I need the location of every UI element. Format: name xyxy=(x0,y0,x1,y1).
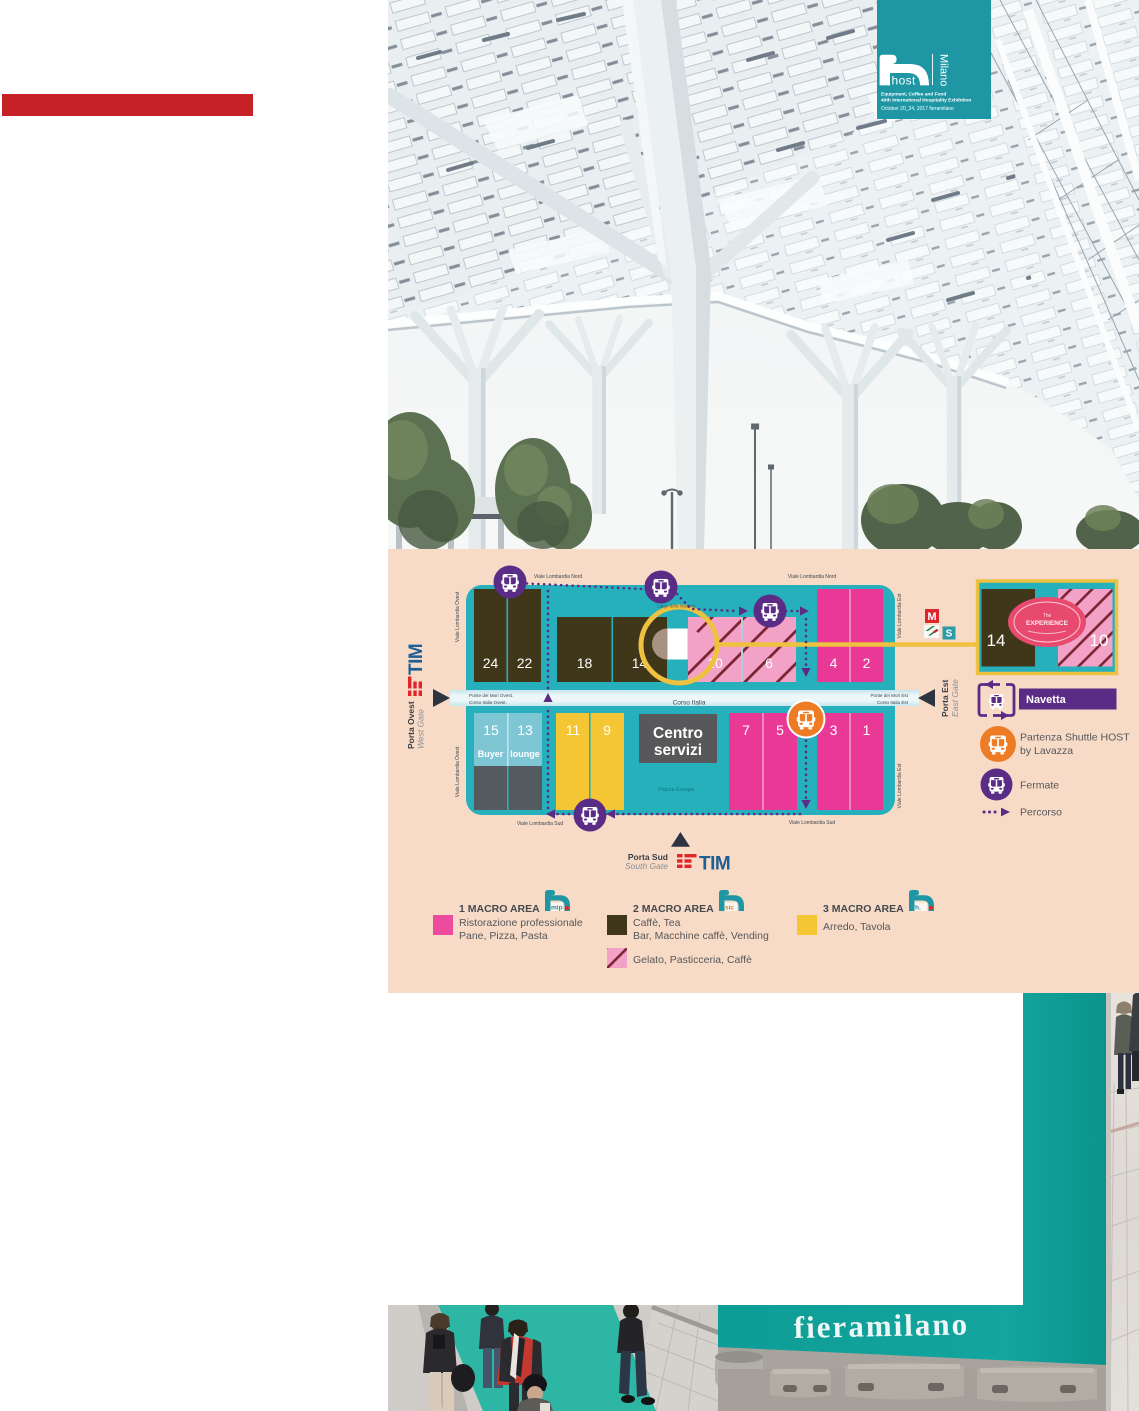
svg-text:servizi: servizi xyxy=(654,742,702,759)
svg-text:Arredo, Tavola: Arredo, Tavola xyxy=(823,921,891,933)
svg-text:Caffè, Tea: Caffè, Tea xyxy=(633,917,681,929)
svg-text:mip: mip xyxy=(551,904,563,911)
svg-text:40th International Hospitality: 40th International Hospitality Exhibitio… xyxy=(881,98,971,104)
svg-text:TIM: TIM xyxy=(406,644,427,675)
svg-text:Fermate: Fermate xyxy=(1020,780,1059,792)
svg-text:TIM: TIM xyxy=(699,854,730,875)
svg-text:6: 6 xyxy=(765,655,773,671)
svg-text:fieramilano: fieramilano xyxy=(793,1306,969,1345)
svg-text:by Lavazza: by Lavazza xyxy=(1020,745,1073,757)
svg-text:East Gate: East Gate xyxy=(950,679,960,717)
svg-text:Viale Lombardia Est: Viale Lombardia Est xyxy=(897,763,903,808)
svg-text:host: host xyxy=(892,74,917,88)
svg-text:Porta Est: Porta Est xyxy=(940,680,950,717)
svg-text:18: 18 xyxy=(577,655,593,671)
svg-text:10: 10 xyxy=(1090,631,1109,650)
svg-text:Viale Lombardia Sud: Viale Lombardia Sud xyxy=(789,820,836,826)
svg-text:22: 22 xyxy=(517,655,533,671)
svg-text:13: 13 xyxy=(517,722,533,738)
svg-text:11: 11 xyxy=(566,722,581,738)
svg-text:Viale Lombardia Ovest: Viale Lombardia Ovest xyxy=(455,746,461,797)
svg-text:Corso Italia Est: Corso Italia Est xyxy=(877,700,909,705)
svg-text:5: 5 xyxy=(776,722,784,738)
svg-text:3 MACRO AREA: 3 MACRO AREA xyxy=(823,903,904,915)
svg-text:Corso Italia Ovest.: Corso Italia Ovest. xyxy=(469,700,507,705)
svg-text:Ponte dei Mari Ovest.: Ponte dei Mari Ovest. xyxy=(469,693,513,698)
svg-text:West Gate: West Gate xyxy=(416,709,426,749)
svg-text:Piazza Europa: Piazza Europa xyxy=(658,787,695,793)
svg-text:Viale Lombardia Nord: Viale Lombardia Nord xyxy=(534,574,582,580)
svg-text:EXPERIENCE: EXPERIENCE xyxy=(1026,620,1069,627)
svg-text:2: 2 xyxy=(863,655,871,671)
svg-text:24: 24 xyxy=(483,655,499,671)
svg-text:1 MACRO AREA: 1 MACRO AREA xyxy=(459,903,540,915)
svg-text:Bar, Macchine caffè, Vending: Bar, Macchine caffè, Vending xyxy=(633,930,769,942)
svg-text:Navetta: Navetta xyxy=(1026,694,1067,706)
svg-text:S: S xyxy=(946,629,953,640)
svg-text:Partenza Shuttle HOST: Partenza Shuttle HOST xyxy=(1020,732,1130,744)
svg-text:14: 14 xyxy=(987,631,1006,650)
svg-text:Buyer: Buyer xyxy=(478,749,504,759)
svg-text:South Gate: South Gate xyxy=(625,861,668,871)
svg-text:3: 3 xyxy=(830,722,838,738)
svg-text:Ristorazione professionale: Ristorazione professionale xyxy=(459,917,583,929)
svg-text:h.: h. xyxy=(915,904,921,911)
svg-text:sic: sic xyxy=(725,904,734,911)
svg-text:Ponte dei Mori Est: Ponte dei Mori Est xyxy=(870,693,908,698)
svg-text:Viale Lombardia Est: Viale Lombardia Est xyxy=(897,593,903,638)
svg-text:2 MACRO AREA: 2 MACRO AREA xyxy=(633,903,714,915)
svg-text:Percorso: Percorso xyxy=(1020,807,1062,819)
svg-text:M: M xyxy=(927,611,936,623)
svg-text:Milano: Milano xyxy=(938,54,950,86)
svg-text:Viale Lombardia Nord: Viale Lombardia Nord xyxy=(788,574,836,580)
svg-text:Porta Ovest: Porta Ovest xyxy=(406,701,416,749)
svg-text:Centro: Centro xyxy=(653,725,703,742)
svg-text:Pane, Pizza, Pasta: Pane, Pizza, Pasta xyxy=(459,930,548,942)
svg-text:October 20_24, 2017 fieramilan: October 20_24, 2017 fieramilano xyxy=(881,106,954,112)
svg-text:lounge: lounge xyxy=(510,749,540,759)
svg-text:Equipment, Coffee and Food: Equipment, Coffee and Food xyxy=(881,92,946,98)
svg-text:Gelato, Pasticceria, Caffè: Gelato, Pasticceria, Caffè xyxy=(633,954,752,966)
svg-text:9: 9 xyxy=(603,722,611,738)
svg-text:4: 4 xyxy=(830,655,838,671)
svg-text:Viale Lombardia Ovest: Viale Lombardia Ovest xyxy=(455,591,461,642)
svg-text:The: The xyxy=(1043,613,1052,619)
svg-text:1: 1 xyxy=(863,722,871,738)
svg-text:Viale Lombardia Sud: Viale Lombardia Sud xyxy=(517,821,564,827)
svg-text:Corso Italia: Corso Italia xyxy=(673,700,706,707)
svg-text:15: 15 xyxy=(483,722,499,738)
svg-text:7: 7 xyxy=(742,722,750,738)
